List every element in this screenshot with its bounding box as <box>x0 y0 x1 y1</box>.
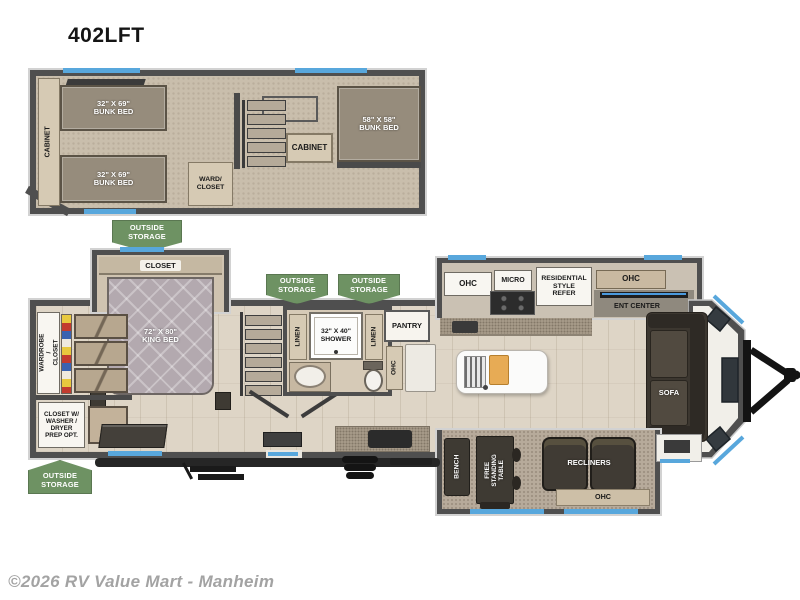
kitchen-sink <box>452 321 478 333</box>
island-drying-rack <box>464 356 486 388</box>
stair-tread <box>245 343 282 354</box>
linen-left-label: LINEN <box>294 327 301 347</box>
recliners-label: RECLINERS <box>540 458 638 469</box>
free-standing-table: FREE STANDING TABLE <box>476 436 514 504</box>
loft-cabinet-side: CABINET <box>38 78 60 206</box>
ohc-kitchen-left: OHC <box>444 272 492 296</box>
sofa-label: SOFA <box>648 388 690 399</box>
outside-storage-label: OUTSIDE STORAGE <box>338 277 400 295</box>
stair-tread <box>245 315 282 326</box>
pantry: PANTRY <box>384 310 430 342</box>
sofa-backrest <box>690 318 705 436</box>
stair-tread <box>247 156 286 167</box>
window-accent <box>120 247 164 252</box>
stair-tread <box>247 128 286 139</box>
stair-tread <box>245 357 282 368</box>
bath-sink <box>294 365 326 388</box>
outside-storage-label: OUTSIDE STORAGE <box>266 277 328 295</box>
bench-label: BENCH <box>453 455 460 479</box>
ohc-rear-slide: OHC <box>556 489 650 506</box>
window-accent <box>268 452 298 456</box>
loft-bunk-top: 32" X 69" BUNK BED <box>60 85 167 131</box>
window-accent <box>295 68 367 73</box>
stair-tread <box>247 142 286 153</box>
window-accent <box>108 451 162 456</box>
stair-tread <box>247 100 286 111</box>
wardrobe-shelf <box>74 314 128 339</box>
cooktop <box>490 291 535 315</box>
loft-bunk-front: 58" X 58" BUNK BED <box>337 86 421 162</box>
ohc-kitchen-right: OHC <box>596 270 666 289</box>
lower-sink <box>368 430 412 448</box>
window-accent <box>63 68 140 73</box>
trailer-hitch-icon <box>751 350 788 412</box>
sofa-cushion <box>650 380 688 426</box>
stair-tread <box>245 371 282 382</box>
media-console <box>98 424 167 448</box>
cap-window-front-icon <box>722 358 738 402</box>
window-accent <box>564 509 638 514</box>
page-title: 402LFT <box>68 24 145 48</box>
sofa-cushion <box>650 330 688 378</box>
bedroom-closet-strip: CLOSET <box>99 257 222 275</box>
loft-ward-closet: WARD/ CLOSET <box>188 162 233 206</box>
window-accent <box>470 509 544 514</box>
underbody-tray <box>390 458 432 465</box>
microwave: MICRO <box>494 270 532 291</box>
linen-right: LINEN <box>365 314 383 360</box>
linen-left: LINEN <box>289 314 307 360</box>
loft-bunk-bottom: 32" X 69" BUNK BED <box>60 155 167 203</box>
outside-storage-badge: OUTSIDE STORAGE <box>28 460 92 494</box>
island-faucet <box>483 385 488 390</box>
fold-step <box>190 466 236 472</box>
outside-storage-label: OUTSIDE STORAGE <box>28 472 92 490</box>
refrigerator: RESIDENTIAL STYLE REFER <box>536 267 592 306</box>
stair-tread <box>245 329 282 340</box>
window-accent <box>660 459 690 463</box>
wardrobe-closet: WARDROBE / CLOSET <box>37 312 60 394</box>
loft-partition-wall <box>234 93 240 169</box>
wardrobe-closet-label: WARDROBE / CLOSET <box>38 334 59 372</box>
copyright-watermark: ©2026 RV Value Mart - Manheim <box>8 572 274 592</box>
table-chair <box>512 448 521 462</box>
bedroom-closet-label: CLOSET <box>140 260 180 271</box>
table-leg <box>480 502 510 509</box>
main-stairs <box>240 312 282 396</box>
linen-right-label: LINEN <box>370 327 377 347</box>
entry-steps <box>346 472 374 479</box>
wardrobe-shelf <box>74 368 128 393</box>
toilet-bowl <box>364 369 383 392</box>
fold-step <box>198 474 244 480</box>
partition-wall <box>36 395 132 400</box>
ohc-bath-label: OHC <box>391 361 398 376</box>
tv-screen-accent <box>602 293 686 295</box>
stair-tread <box>247 114 286 125</box>
washer-dryer-closet: CLOSET W/ WASHER / DRYER PREP OPT. <box>38 402 85 448</box>
front-entry-mat <box>664 440 690 453</box>
window-accent <box>84 209 136 214</box>
ent-center: ENT CENTER <box>594 300 680 312</box>
ohc-bath: OHC <box>386 346 403 390</box>
counter-cabinet <box>405 344 436 392</box>
loft-stairs <box>242 100 286 168</box>
entry-steps <box>344 464 376 471</box>
window-accent <box>644 255 682 260</box>
floorplan-page: 402LFT CABINET 32" X 69" BUNK BED 32" X … <box>0 0 800 600</box>
bench: BENCH <box>444 438 470 496</box>
wardrobe-shelf <box>74 341 128 366</box>
hanging-clothes <box>61 314 72 394</box>
shower-drain <box>334 350 338 354</box>
free-standing-table-label: FREE STANDING TABLE <box>485 454 506 486</box>
nightstand <box>215 392 231 410</box>
entry-steps <box>342 456 378 463</box>
loft-wall-under-bunk <box>337 162 421 168</box>
underbody-frame <box>95 458 440 467</box>
door-mat <box>263 432 302 447</box>
loft-cabinet-mid: CABINET <box>286 133 333 163</box>
window-accent <box>448 255 486 260</box>
outside-storage-label: OUTSIDE STORAGE <box>112 224 182 242</box>
loft-cabinet-side-label: CABINET <box>45 126 53 157</box>
table-chair <box>512 476 521 490</box>
island-cutting-board <box>489 355 509 385</box>
